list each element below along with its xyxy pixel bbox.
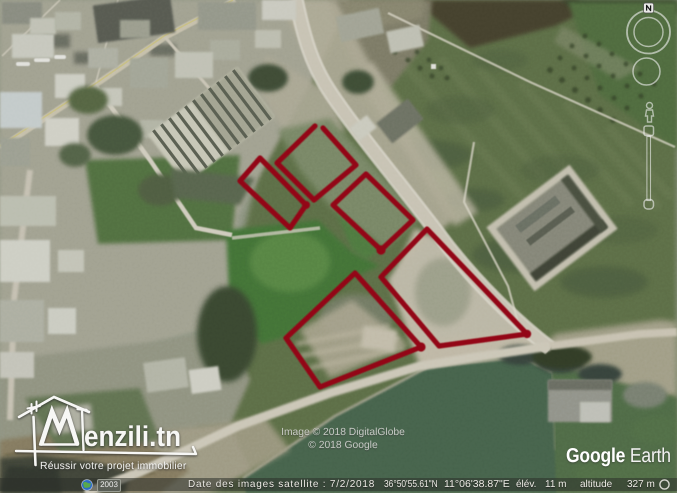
svg-text:enzili.tn: enzili.tn [84, 421, 181, 453]
svg-text:Réussir votre projet immobilie: Réussir votre projet immobilier [40, 461, 187, 472]
